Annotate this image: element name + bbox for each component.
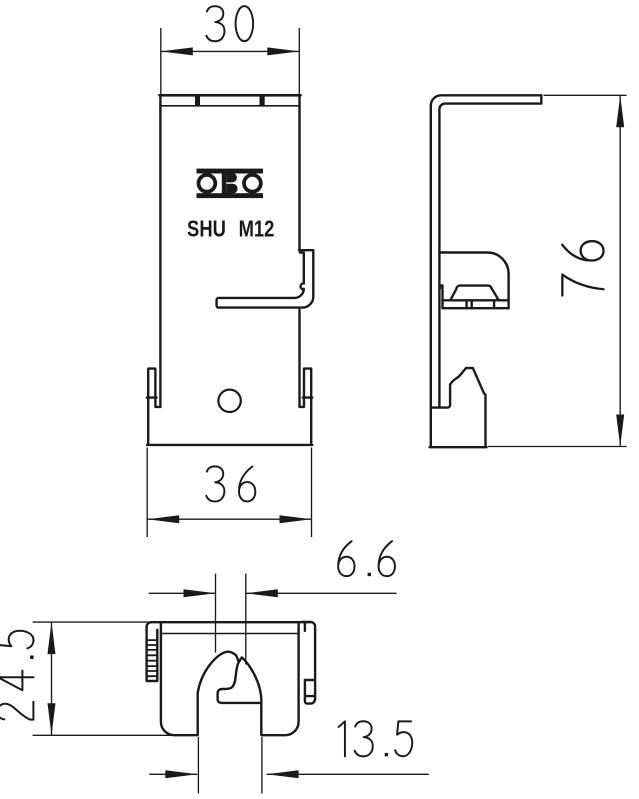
svg-text:M12: M12 [239,216,275,241]
svg-text:SHU: SHU [187,216,226,241]
